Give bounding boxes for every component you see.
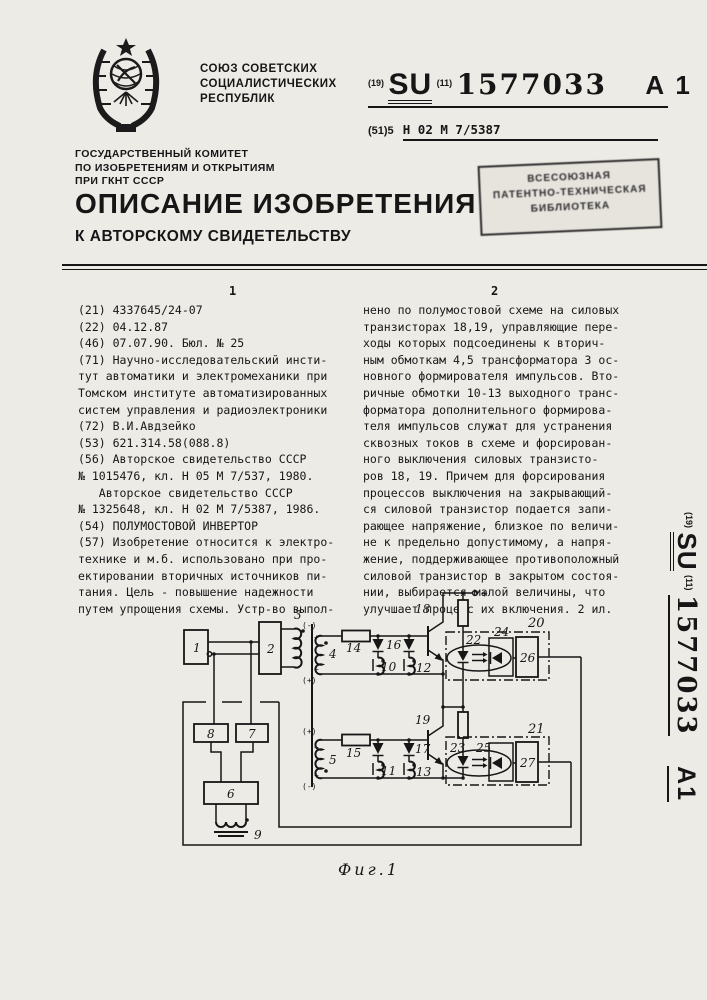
winding-4: 4 (-) + − (+) bbox=[302, 621, 337, 685]
svg-text:20: 20 bbox=[527, 616, 545, 631]
transformer-3: 3 bbox=[281, 608, 312, 787]
svg-text:(-): (-) bbox=[302, 782, 316, 791]
svg-text:15: 15 bbox=[346, 746, 361, 760]
svg-text:24: 24 bbox=[493, 625, 509, 639]
diode-winding-branch-11: 11 bbox=[373, 738, 397, 780]
committee-name: ГОСУДАРСТВЕННЫЙ КОМИТЕТ ПО ИЗОБРЕТЕНИЯМ … bbox=[75, 148, 275, 189]
left-column-text: (21) 4337645/24-07 (22) 04.12.87 (46) 07… bbox=[78, 302, 334, 617]
svg-text:21: 21 bbox=[527, 722, 545, 737]
svg-text:(+): (+) bbox=[302, 676, 316, 685]
emblem-ribbon bbox=[116, 124, 136, 132]
ussr-emblem bbox=[84, 36, 168, 136]
svg-text:−: − bbox=[314, 743, 319, 752]
svg-text:9: 9 bbox=[254, 828, 262, 842]
svg-text:(-): (-) bbox=[302, 621, 316, 630]
sidebar-country-code: SU bbox=[670, 532, 700, 570]
svg-text:13: 13 bbox=[416, 765, 432, 779]
right-column-text: нено по полумостовой схеме на силовых тр… bbox=[363, 302, 619, 617]
sidebar-code-19: (19) bbox=[684, 512, 694, 528]
svg-text:6: 6 bbox=[227, 787, 235, 801]
block-6: 6 bbox=[204, 782, 258, 804]
header-divider bbox=[62, 264, 707, 270]
svg-text:25: 25 bbox=[475, 741, 491, 755]
optocoupler-20: 22 24 20 26 bbox=[446, 593, 581, 707]
publication-header: (19) SU (11) 1577033 А 1 bbox=[368, 68, 668, 108]
svg-text:19: 19 bbox=[415, 713, 431, 727]
circuit-diagram-fig1: 1 2 3 4 (-) + − (+) 14 bbox=[176, 582, 616, 860]
resistor-14: 14 bbox=[342, 631, 370, 656]
svg-text:(+): (+) bbox=[302, 727, 316, 736]
svg-text:12: 12 bbox=[416, 661, 431, 675]
sidebar-code-11: (11) bbox=[684, 575, 694, 591]
ipc-class: Н 02 М 7/5387 bbox=[403, 122, 658, 141]
svg-text:5: 5 bbox=[329, 753, 337, 767]
patent-document-page: СОЮЗ СОВЕТСКИХ СОЦИАЛИСТИЧЕСКИХ РЕСПУБЛИ… bbox=[0, 0, 707, 1000]
svg-text:26: 26 bbox=[519, 651, 536, 665]
svg-text:+: + bbox=[481, 587, 488, 600]
code-11: (11) bbox=[437, 78, 453, 88]
sidebar-publication-number: 1577033 bbox=[668, 595, 701, 736]
optocoupler-21: 23 25 21 27 bbox=[446, 707, 571, 785]
document-subtitle: К АВТОРСКОМУ СВИДЕТЕЛЬСТВУ bbox=[75, 228, 351, 246]
winding-5: 5 (+) − + (-) bbox=[302, 727, 337, 791]
svg-text:27: 27 bbox=[519, 756, 536, 770]
country-code: SU bbox=[388, 70, 432, 104]
sidebar-publication-id: (19) SU (11) 1577033 А1 bbox=[637, 512, 701, 824]
ipc-classification: (51)5 Н 02 М 7/5387 bbox=[368, 122, 658, 141]
block-8: 8 bbox=[194, 724, 228, 742]
svg-text:8: 8 bbox=[207, 727, 215, 741]
svg-text:2: 2 bbox=[266, 642, 275, 656]
library-stamp: ВСЕСОЮЗНАЯ ПАТЕНТНО-ТЕХНИЧЕСКАЯ БИБЛИОТЕ… bbox=[478, 158, 663, 236]
union-name: СОЮЗ СОВЕТСКИХ СОЦИАЛИСТИЧЕСКИХ РЕСПУБЛИ… bbox=[200, 62, 337, 107]
svg-text:4: 4 bbox=[328, 647, 337, 661]
svg-text:+: + bbox=[314, 771, 319, 780]
svg-text:10: 10 bbox=[381, 660, 397, 674]
svg-text:1: 1 bbox=[193, 641, 201, 655]
svg-text:23: 23 bbox=[449, 741, 466, 755]
svg-text:−: − bbox=[314, 665, 319, 674]
column-1-marker: 1 bbox=[229, 284, 236, 298]
kind-code: А 1 bbox=[645, 70, 691, 100]
svg-text:11: 11 bbox=[381, 764, 396, 778]
resistor-15: 15 bbox=[342, 735, 370, 761]
code-19: (19) bbox=[368, 78, 384, 88]
svg-text:14: 14 bbox=[346, 641, 361, 655]
figure-caption: Фиг.1 bbox=[338, 860, 400, 879]
document-title: ОПИСАНИЕ ИЗОБРЕТЕНИЯ bbox=[75, 188, 476, 220]
block-1-master-oscillator: 1 bbox=[184, 630, 259, 724]
svg-text:+: + bbox=[314, 633, 319, 642]
transistor-18: 18 bbox=[415, 593, 445, 707]
block-interconnect-wires bbox=[211, 742, 253, 782]
emblem-star bbox=[116, 38, 136, 56]
column-2-marker: 2 bbox=[491, 284, 498, 298]
svg-text:3: 3 bbox=[294, 608, 302, 622]
sidebar-kind-code: А1 bbox=[667, 766, 700, 802]
svg-text:18: 18 bbox=[415, 602, 431, 616]
svg-text:22: 22 bbox=[465, 633, 481, 647]
block-7: 7 bbox=[236, 724, 268, 742]
transformer-9: 9 bbox=[214, 804, 262, 842]
block-2-main-driver: 2 bbox=[259, 622, 281, 674]
svg-text:7: 7 bbox=[248, 727, 256, 741]
code-51: (51)5 bbox=[368, 125, 394, 137]
publication-number: 1577033 bbox=[457, 68, 607, 101]
plus-supply-terminal: + bbox=[443, 587, 488, 600]
label-16: 16 bbox=[386, 638, 402, 652]
